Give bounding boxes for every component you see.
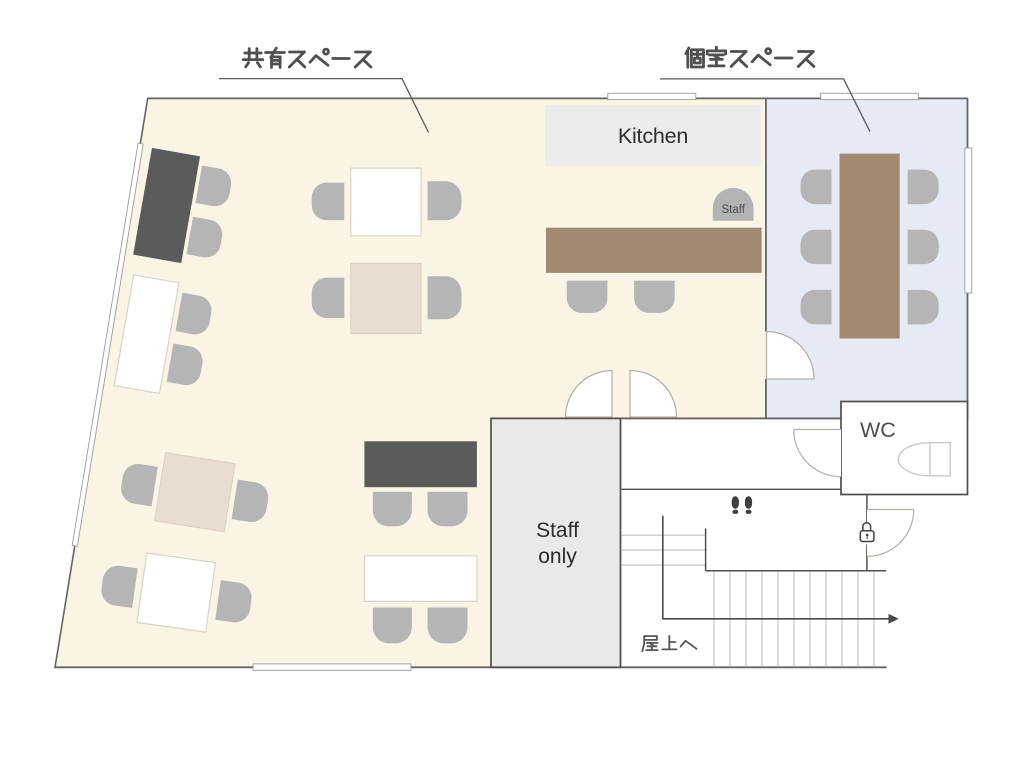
svg-text:WC: WC xyxy=(860,418,896,442)
svg-text:only: only xyxy=(538,545,577,568)
svg-text:Staff: Staff xyxy=(721,204,745,216)
svg-text:Kitchen: Kitchen xyxy=(618,124,688,148)
svg-text:Staff: Staff xyxy=(536,519,579,542)
